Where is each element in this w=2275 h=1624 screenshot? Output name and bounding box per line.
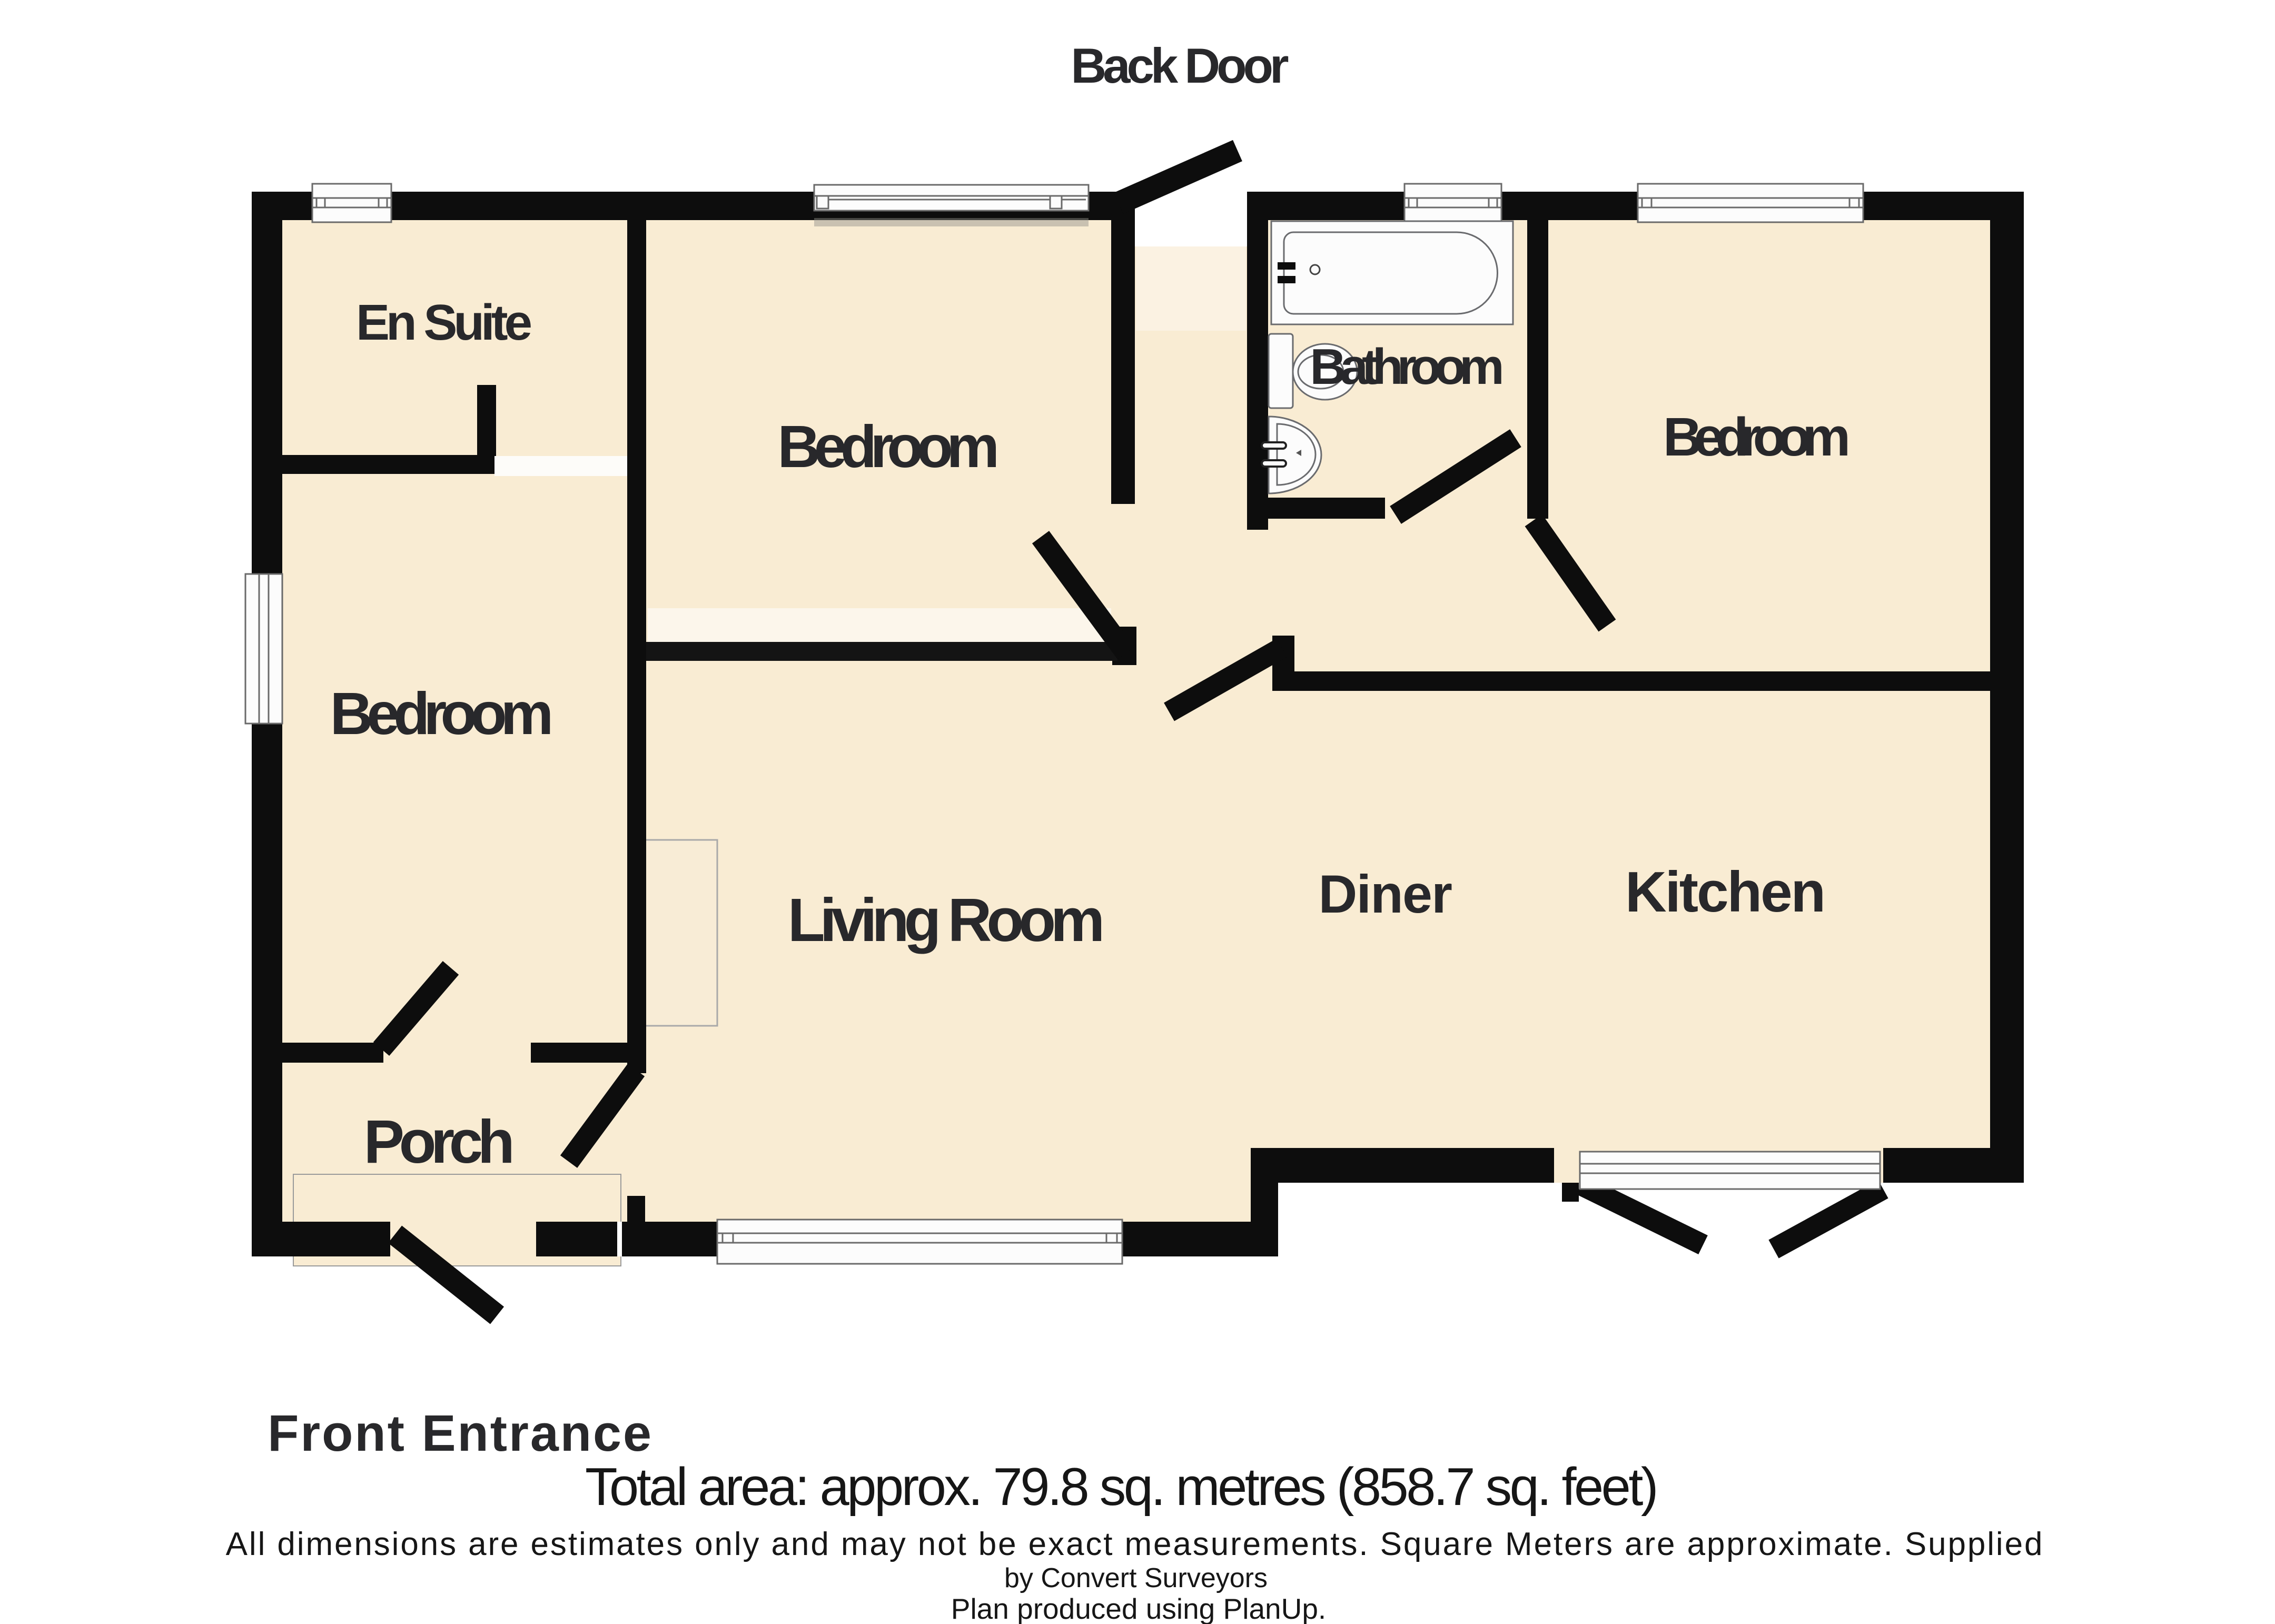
svg-text:Bathroom: Bathroom <box>1310 339 1501 395</box>
svg-text:Bedroom: Bedroom <box>330 680 550 747</box>
svg-text:Total area: approx. 79.8 sq. m: Total area: approx. 79.8 sq. metres (858… <box>585 1458 1656 1517</box>
svg-text:Back Door: Back Door <box>1071 38 1289 93</box>
svg-text:Diner: Diner <box>1319 864 1452 924</box>
svg-text:by Convert Surveyors: by Convert Surveyors <box>1004 1563 1268 1593</box>
svg-text:Living Room: Living Room <box>788 886 1101 954</box>
svg-text:Kitchen: Kitchen <box>1625 860 1824 924</box>
svg-text:Plan produced using PlanUp.: Plan produced using PlanUp. <box>951 1592 1326 1624</box>
svg-text:Porch: Porch <box>364 1107 511 1176</box>
svg-text:Front Entrance: Front Entrance <box>268 1404 653 1462</box>
svg-text:All dimensions are estimates o: All dimensions are estimates only and ma… <box>226 1526 2044 1562</box>
svg-text:Bedroom: Bedroom <box>1663 407 1848 467</box>
svg-text:Bedroom: Bedroom <box>777 413 996 480</box>
svg-text:En Suite: En Suite <box>356 294 531 351</box>
